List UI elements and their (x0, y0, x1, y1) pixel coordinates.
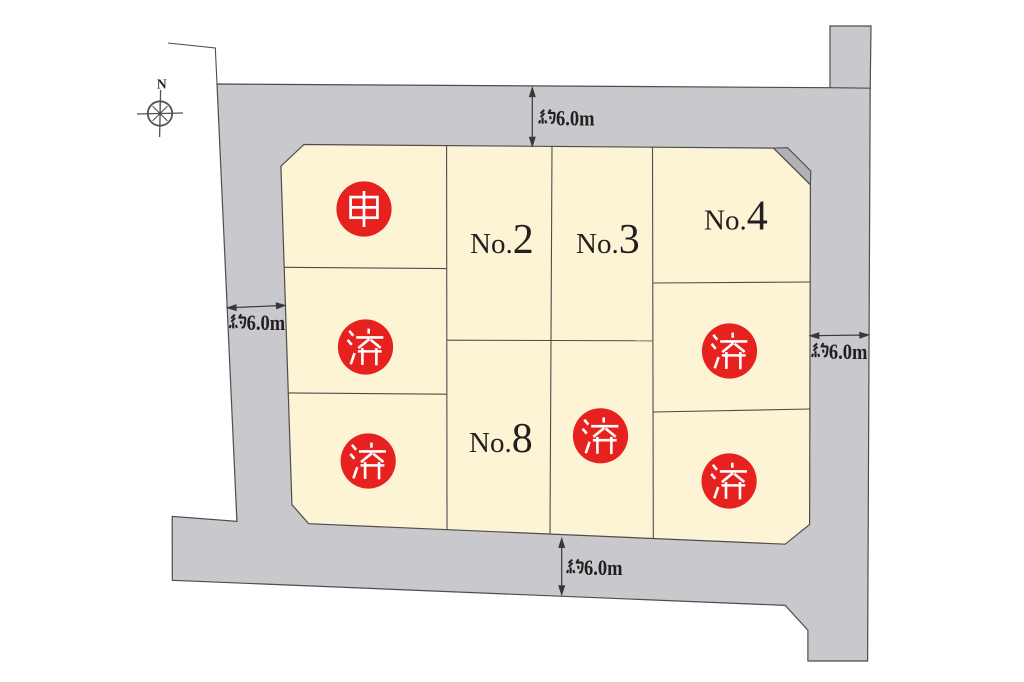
svg-text:6.0m: 6.0m (829, 339, 868, 364)
svg-text:6.0m: 6.0m (556, 105, 595, 130)
svg-text:N: N (157, 77, 167, 92)
svg-text:6.0m: 6.0m (584, 555, 623, 580)
svg-text:6.0m: 6.0m (247, 310, 286, 335)
